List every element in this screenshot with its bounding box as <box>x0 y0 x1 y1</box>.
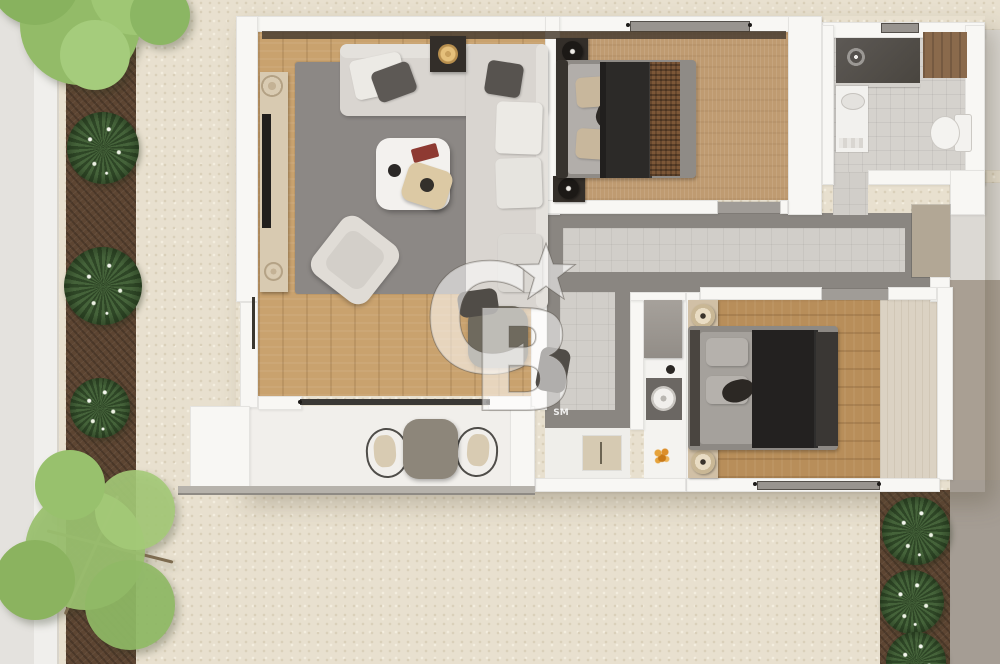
wall-bedroom1-bottom-a <box>545 200 718 214</box>
left-wall-window <box>252 297 255 349</box>
wall-bedroom2-right <box>937 287 953 480</box>
floor-plan-render: C B SM <box>0 0 1000 664</box>
entry-mat <box>583 436 621 470</box>
bedroom2-wardrobe-floor <box>880 300 937 478</box>
table-lamp <box>691 304 715 328</box>
tree-foliage <box>95 470 175 550</box>
floor-plant-orange <box>652 446 672 466</box>
kitchen-sink <box>651 386 676 411</box>
rear-window-dot <box>877 482 881 486</box>
wall-bedroom1-right <box>788 16 822 215</box>
kitchen-tall-cabinet <box>644 300 682 358</box>
tree-foliage <box>0 540 75 620</box>
tree-foliage <box>60 20 130 90</box>
bed2-headboard <box>690 330 700 446</box>
wall-bedroom1-bottom-b <box>780 200 788 214</box>
tree-foliage <box>85 560 175 650</box>
tree-foliage <box>35 450 105 520</box>
wall-right-top-chunk <box>950 170 985 215</box>
wall-left-lower <box>240 302 258 408</box>
wall-kitchen-left <box>630 292 644 430</box>
wall-left <box>236 16 258 302</box>
table-lamp <box>562 41 583 62</box>
entry-door-panel <box>912 205 950 277</box>
wall-bedroom2-top-b <box>888 287 937 300</box>
bed2-pillow <box>706 338 748 366</box>
bed1-throw <box>650 62 680 176</box>
table-lamp <box>691 450 715 474</box>
toilet-bowl <box>930 116 960 150</box>
bed2-blanket-fold <box>816 332 838 446</box>
tree-bottom-left <box>0 450 195 664</box>
wall-bathroom-right <box>965 25 985 185</box>
shower-head <box>847 48 865 66</box>
bed2-blanket <box>752 330 818 448</box>
bush <box>882 497 950 565</box>
watermark-service-mark: SM <box>553 408 568 418</box>
bathroom-wood-panel <box>923 32 967 78</box>
neighbor-room-sliver <box>985 30 1000 170</box>
wall-living-bottom-a <box>258 396 302 410</box>
sofa-pillow <box>495 101 543 155</box>
entry-mat-sprig <box>600 442 602 464</box>
brand-watermark: C B SM <box>418 238 588 428</box>
watermark-letter-b: B <box>470 281 577 428</box>
bedroom1-door-threshold <box>718 202 780 213</box>
bedroom2-door-threshold <box>822 289 888 300</box>
chair-seat <box>373 434 397 467</box>
vanity-basin <box>841 93 865 110</box>
bed1-headboard <box>556 60 568 178</box>
bush <box>64 247 142 325</box>
bed1-blanket <box>600 62 652 178</box>
wall-bedroom2-top-a <box>700 287 822 300</box>
bathroom-window <box>881 23 919 33</box>
gold-tray <box>438 44 458 64</box>
table-lamp <box>558 178 579 199</box>
window-dot <box>748 23 752 27</box>
bathroom-door-tile <box>833 172 868 215</box>
tree-foliage <box>130 0 190 45</box>
bush <box>70 378 130 438</box>
window-dot <box>626 23 630 27</box>
balcony-rail <box>178 486 535 495</box>
console-planter <box>264 262 283 281</box>
sofa-pillow <box>484 59 525 98</box>
sofa-pillow <box>495 157 543 209</box>
bush <box>67 112 139 184</box>
console-planter <box>261 75 283 97</box>
balcony-table <box>403 419 458 479</box>
rear-window-dot <box>753 482 757 486</box>
chair-seat <box>466 433 490 466</box>
sliding-door-dot <box>298 400 302 404</box>
hallway-floor-center <box>563 228 905 272</box>
neighbor-block-bottom <box>950 480 1000 664</box>
vanity-towel <box>839 138 863 148</box>
coffee-table-bowl <box>388 164 401 177</box>
wall-bathroom-left <box>822 25 834 185</box>
bush <box>880 570 944 634</box>
balcony-patio-slab <box>190 406 250 492</box>
living-top-beam <box>262 31 786 39</box>
tree-top-left <box>0 0 190 115</box>
kitchen-faucet <box>666 365 675 374</box>
bedroom2-rear-window <box>757 481 880 490</box>
wall-entry-bottom <box>535 478 686 492</box>
tv-screen <box>262 114 271 228</box>
